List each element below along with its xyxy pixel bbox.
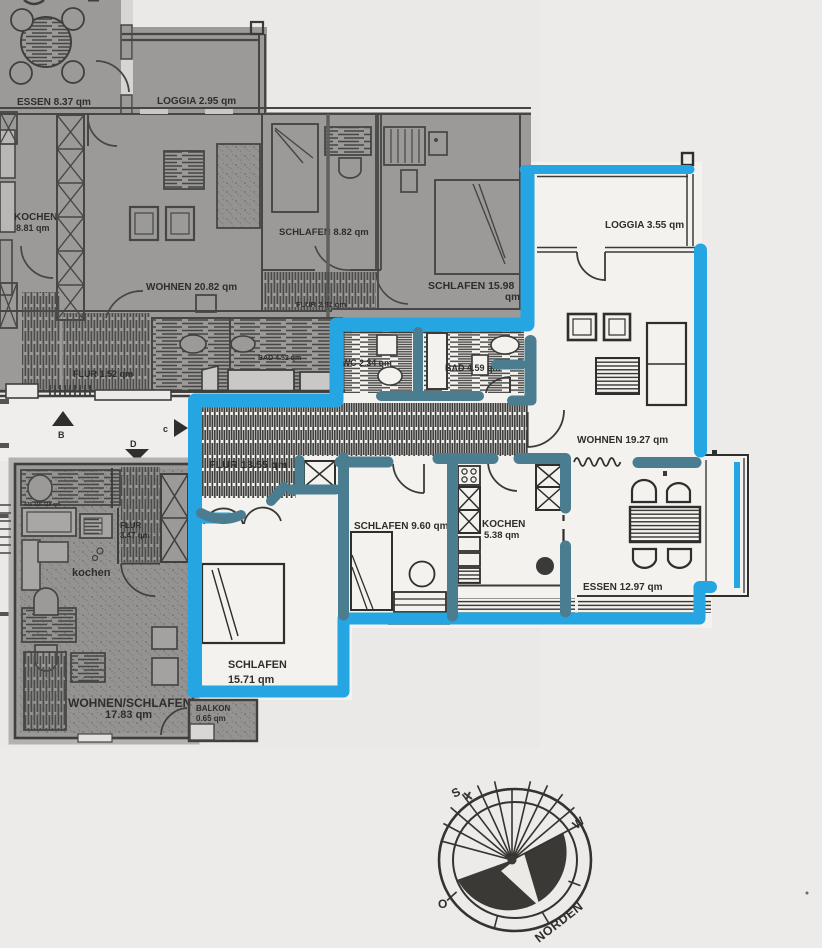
svg-text:LOGGIA 3.55 qm: LOGGIA 3.55 qm xyxy=(605,220,684,231)
svg-text:WC 2.34 qm: WC 2.34 qm xyxy=(342,358,392,368)
svg-text:8.81 qm: 8.81 qm xyxy=(16,223,50,233)
svg-text:SCHLAFEN 8.82 qm: SCHLAFEN 8.82 qm xyxy=(279,227,369,238)
svg-text:WOHNEN/SCHLAFEN: WOHNEN/SCHLAFEN xyxy=(68,696,191,710)
svg-text:qm: qm xyxy=(505,292,520,303)
svg-text:kochen: kochen xyxy=(72,567,111,579)
svg-text:LOGGIA 2.95 qm: LOGGIA 2.95 qm xyxy=(157,96,236,107)
svg-text:ESSEN 12.97 qm: ESSEN 12.97 qm xyxy=(583,582,663,593)
svg-text:FLUR 13.55 qm: FLUR 13.55 qm xyxy=(209,459,287,471)
svg-text:SCHLAFEN: SCHLAFEN xyxy=(228,659,287,671)
svg-text:SCHLAFEN 9.60 qm: SCHLAFEN 9.60 qm xyxy=(354,521,449,532)
svg-text:15.71 qm: 15.71 qm xyxy=(228,674,274,686)
svg-text:BALKON: BALKON xyxy=(196,704,230,713)
svg-text:0.65 qm: 0.65 qm xyxy=(196,714,226,723)
svg-text:c: c xyxy=(163,424,168,434)
svg-text:D: D xyxy=(130,439,137,449)
svg-text:O: O xyxy=(438,897,447,911)
svg-text:FLUR: FLUR xyxy=(120,521,142,530)
svg-text:SCHLAFEN 15.98: SCHLAFEN 15.98 xyxy=(428,280,515,292)
svg-text:FLUR 2.81 qm: FLUR 2.81 qm xyxy=(296,300,346,309)
svg-text:FLUR 1.52 qm: FLUR 1.52 qm xyxy=(73,369,133,379)
svg-text:3.47 qm: 3.47 qm xyxy=(120,531,150,540)
svg-text:ESSEN 8.37 qm: ESSEN 8.37 qm xyxy=(17,97,91,108)
svg-text:BAD 4.52 qm: BAD 4.52 qm xyxy=(258,355,301,362)
svg-text:5.38 qm: 5.38 qm xyxy=(484,530,519,541)
svg-text:17.83 qm: 17.83 qm xyxy=(105,709,152,721)
svg-text:KOCHEN: KOCHEN xyxy=(482,519,525,530)
svg-text:B: B xyxy=(58,430,65,440)
svg-text:WOHNEN 20.82 qm: WOHNEN 20.82 qm xyxy=(146,282,237,293)
svg-text:KOCHEN: KOCHEN xyxy=(14,212,57,223)
svg-text:WOHNEN 19.27 qm: WOHNEN 19.27 qm xyxy=(577,435,668,446)
